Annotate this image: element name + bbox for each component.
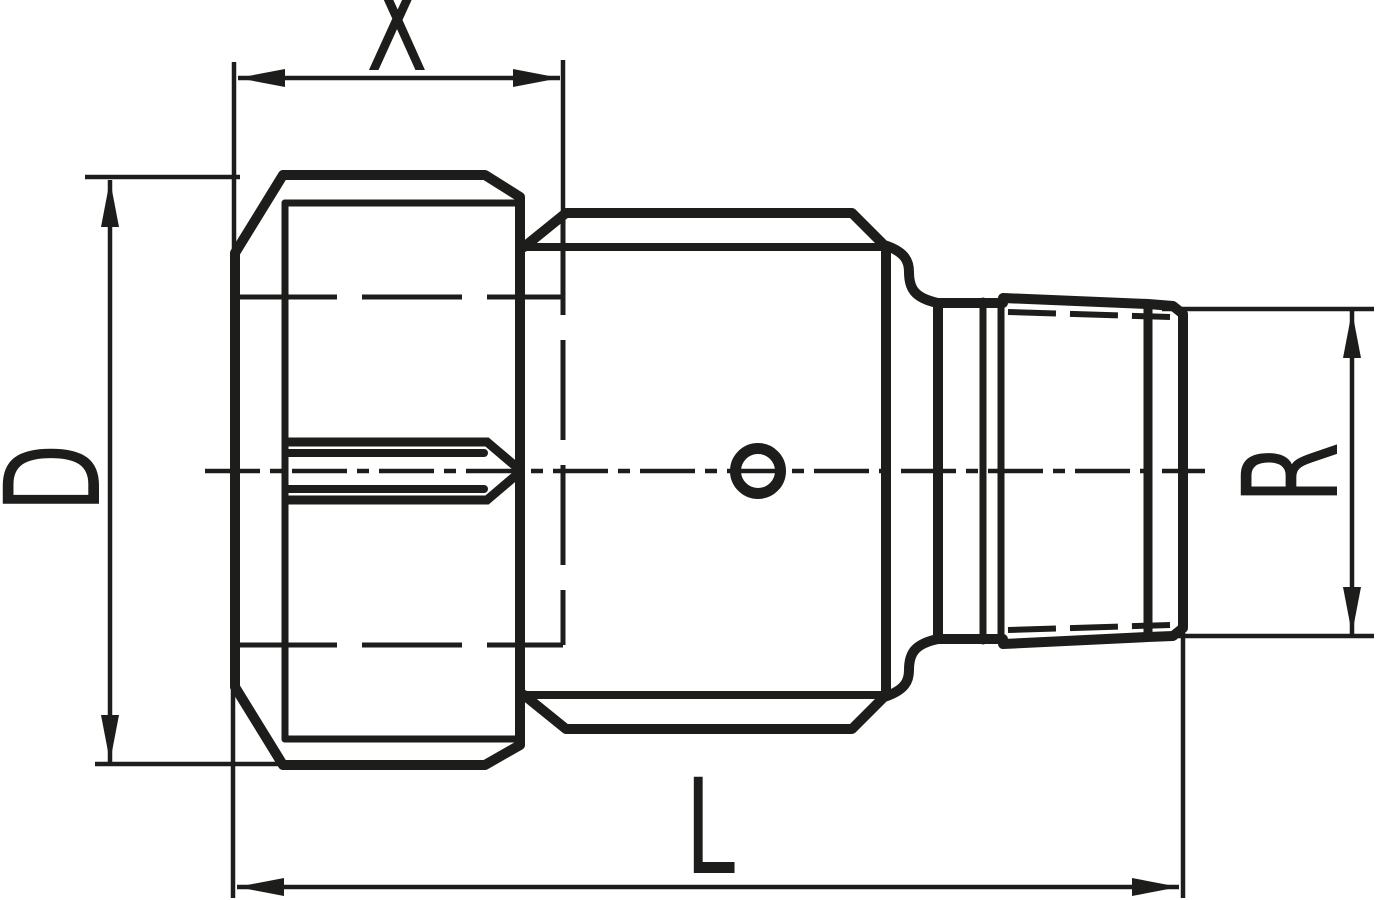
fitting-technical-drawing: X D L R (0, 0, 1400, 900)
dimension-d-arrowhead-bottom (101, 715, 119, 762)
body-outline-top (524, 213, 1003, 303)
body-outline-bottom (524, 639, 1003, 729)
dimension-r-arrowhead-top (1343, 311, 1361, 358)
dimension-x-arrowhead-left (238, 69, 285, 87)
dimension-d-arrowhead-top (101, 180, 119, 227)
dimension-l-label: L (685, 750, 735, 900)
dimension-r-arrowhead-bottom (1343, 587, 1361, 634)
dimension-r-label: R (1214, 442, 1368, 504)
dimension-d-label: D (0, 443, 131, 512)
dimension-x-arrowhead-right (513, 69, 560, 87)
dimension-l-arrowhead-right (1132, 878, 1179, 896)
dimension-x-label: X (366, 0, 427, 102)
dimension-l-arrowhead-left (237, 878, 284, 896)
drawing-canvas: X D L R (0, 0, 1400, 900)
